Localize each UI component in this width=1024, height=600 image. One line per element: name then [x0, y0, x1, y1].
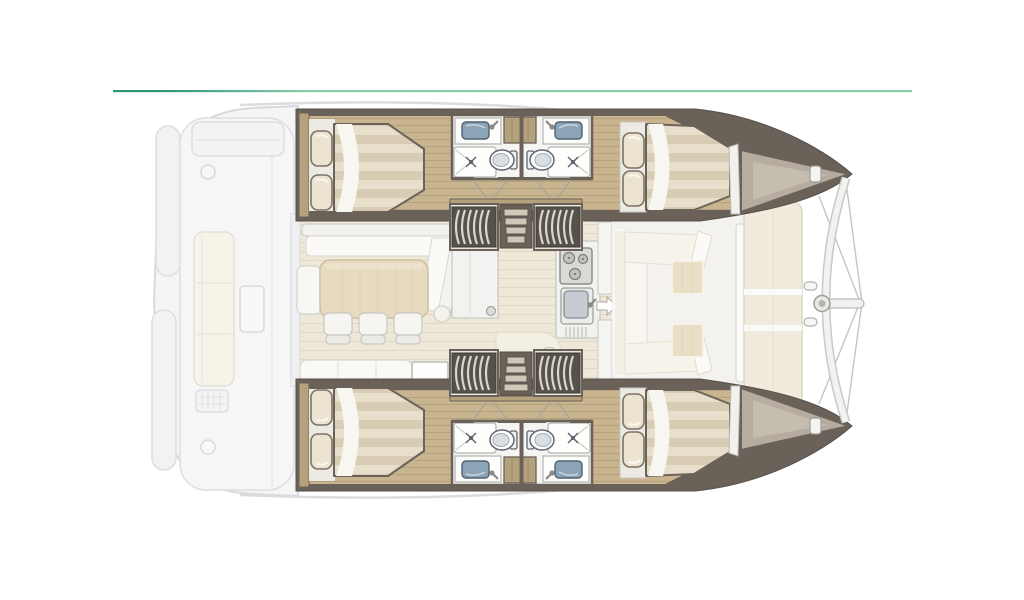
stove-three-burners	[560, 248, 592, 284]
dining-chairs	[324, 313, 422, 344]
cocktail-table	[672, 261, 703, 294]
side-sofa	[194, 232, 234, 386]
cleat	[804, 318, 817, 326]
transom-platform	[152, 310, 176, 470]
sideboard-cabinet	[452, 242, 498, 318]
catamaran-floorplan	[0, 0, 1024, 600]
cocktail-table	[672, 324, 703, 357]
deck-table	[240, 286, 264, 332]
deck-hatch-circle	[201, 440, 215, 454]
dining-table	[320, 260, 428, 318]
deck-grate	[196, 390, 228, 412]
floorplan-canvas	[0, 0, 1024, 600]
cleat	[804, 282, 817, 290]
transom-platform	[156, 126, 180, 276]
sofa-armrest-table	[297, 266, 321, 314]
deck-hatch-circle	[201, 165, 215, 179]
galley	[556, 241, 600, 338]
accent-line	[113, 90, 912, 92]
forward-wall	[598, 222, 612, 294]
foredeck-sunpads	[744, 202, 802, 416]
forward-cockpit	[612, 214, 745, 386]
aft-bench	[192, 122, 284, 156]
aft-cockpit	[152, 106, 298, 496]
galley-sink	[561, 288, 596, 324]
